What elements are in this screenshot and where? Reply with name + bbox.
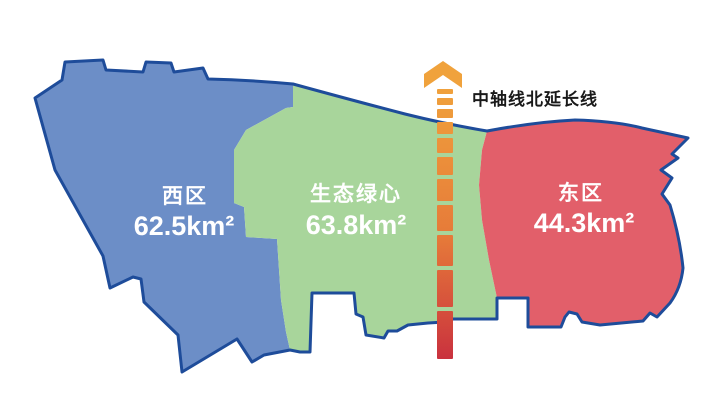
central-axis-label: 中轴线北延长线 bbox=[472, 89, 598, 109]
axis-dash bbox=[437, 89, 453, 94]
district-map-svg: 西区 62.5km² 生态绿心 63.8km² 东区 44.3km² 中轴线北延… bbox=[0, 0, 718, 407]
region-east-name: 东区 bbox=[558, 181, 604, 205]
axis-dash bbox=[437, 270, 453, 307]
axis-dash bbox=[437, 205, 453, 231]
axis-dash bbox=[437, 235, 453, 266]
region-west-name: 西区 bbox=[162, 185, 208, 208]
axis-dash bbox=[437, 109, 453, 118]
region-east-area: 44.3km² bbox=[534, 208, 635, 238]
axis-dash bbox=[437, 179, 453, 201]
axis-dash bbox=[437, 157, 453, 175]
region-west-area: 62.5km² bbox=[134, 211, 235, 241]
axis-dash bbox=[437, 122, 453, 134]
district-map-canvas: 西区 62.5km² 生态绿心 63.8km² 东区 44.3km² 中轴线北延… bbox=[0, 0, 718, 407]
region-green-heart-name: 生态绿心 bbox=[310, 182, 402, 206]
axis-dash bbox=[437, 311, 453, 359]
region-green-heart-area: 63.8km² bbox=[306, 210, 407, 240]
axis-dash bbox=[437, 138, 453, 153]
axis-dashes bbox=[437, 89, 453, 359]
chevron-up-arrow-icon bbox=[424, 61, 462, 88]
axis-dash bbox=[437, 98, 453, 105]
